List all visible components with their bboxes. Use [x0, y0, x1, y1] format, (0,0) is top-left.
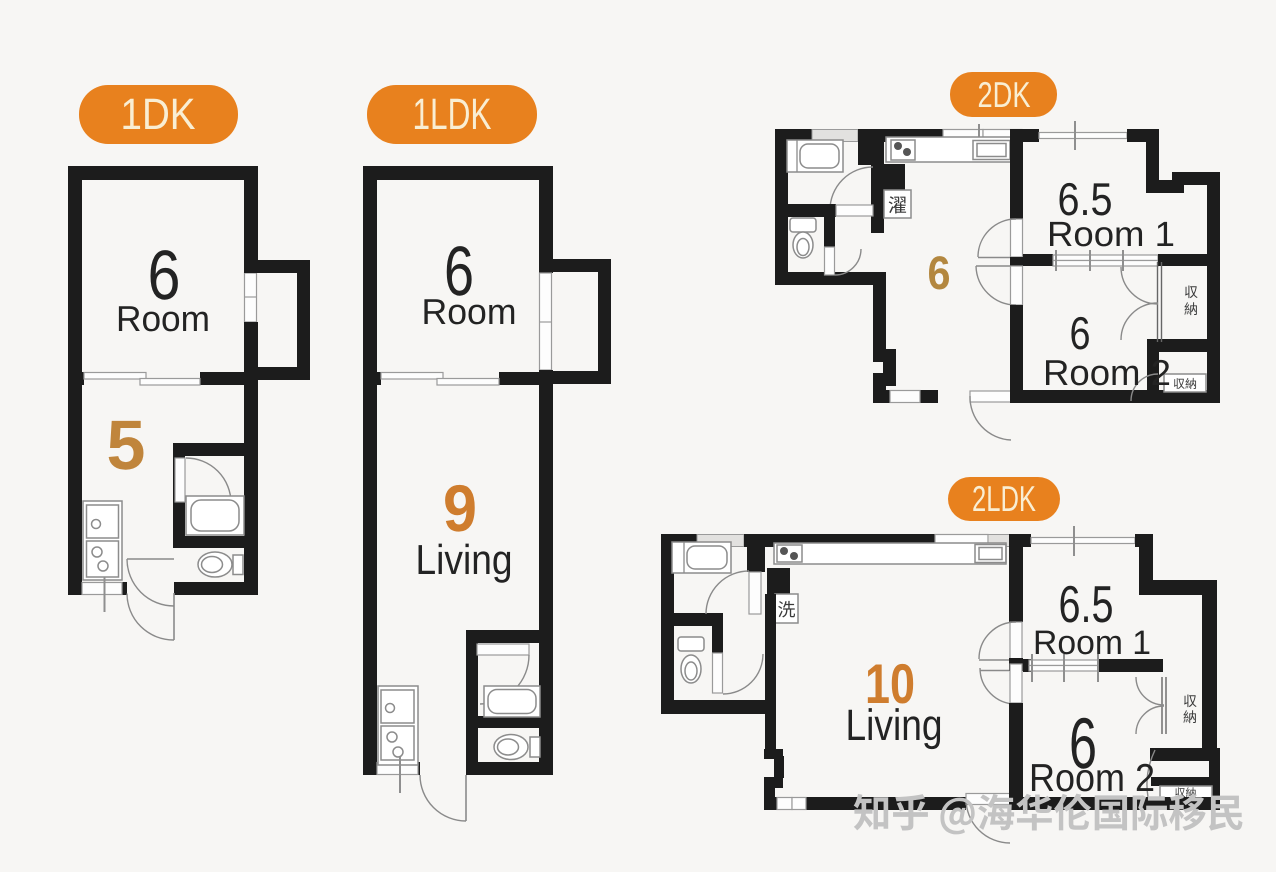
svg-text:2LDK: 2LDK	[972, 478, 1036, 519]
svg-text:Living: Living	[846, 701, 943, 750]
svg-text:Room 1: Room 1	[1047, 215, 1175, 254]
svg-text:1DK: 1DK	[121, 90, 196, 139]
svg-text:6: 6	[928, 246, 951, 299]
svg-text:Room 2: Room 2	[1043, 352, 1171, 393]
svg-text:5: 5	[107, 406, 146, 484]
svg-text:Room: Room	[422, 291, 517, 332]
svg-text:1LDK: 1LDK	[413, 90, 492, 139]
svg-text:Room: Room	[116, 298, 210, 339]
svg-text:Room 1: Room 1	[1033, 624, 1151, 662]
svg-text:Room 2: Room 2	[1029, 757, 1155, 800]
svg-text:9: 9	[443, 471, 477, 545]
svg-text:2DK: 2DK	[978, 74, 1031, 115]
svg-text:Living: Living	[416, 536, 513, 583]
